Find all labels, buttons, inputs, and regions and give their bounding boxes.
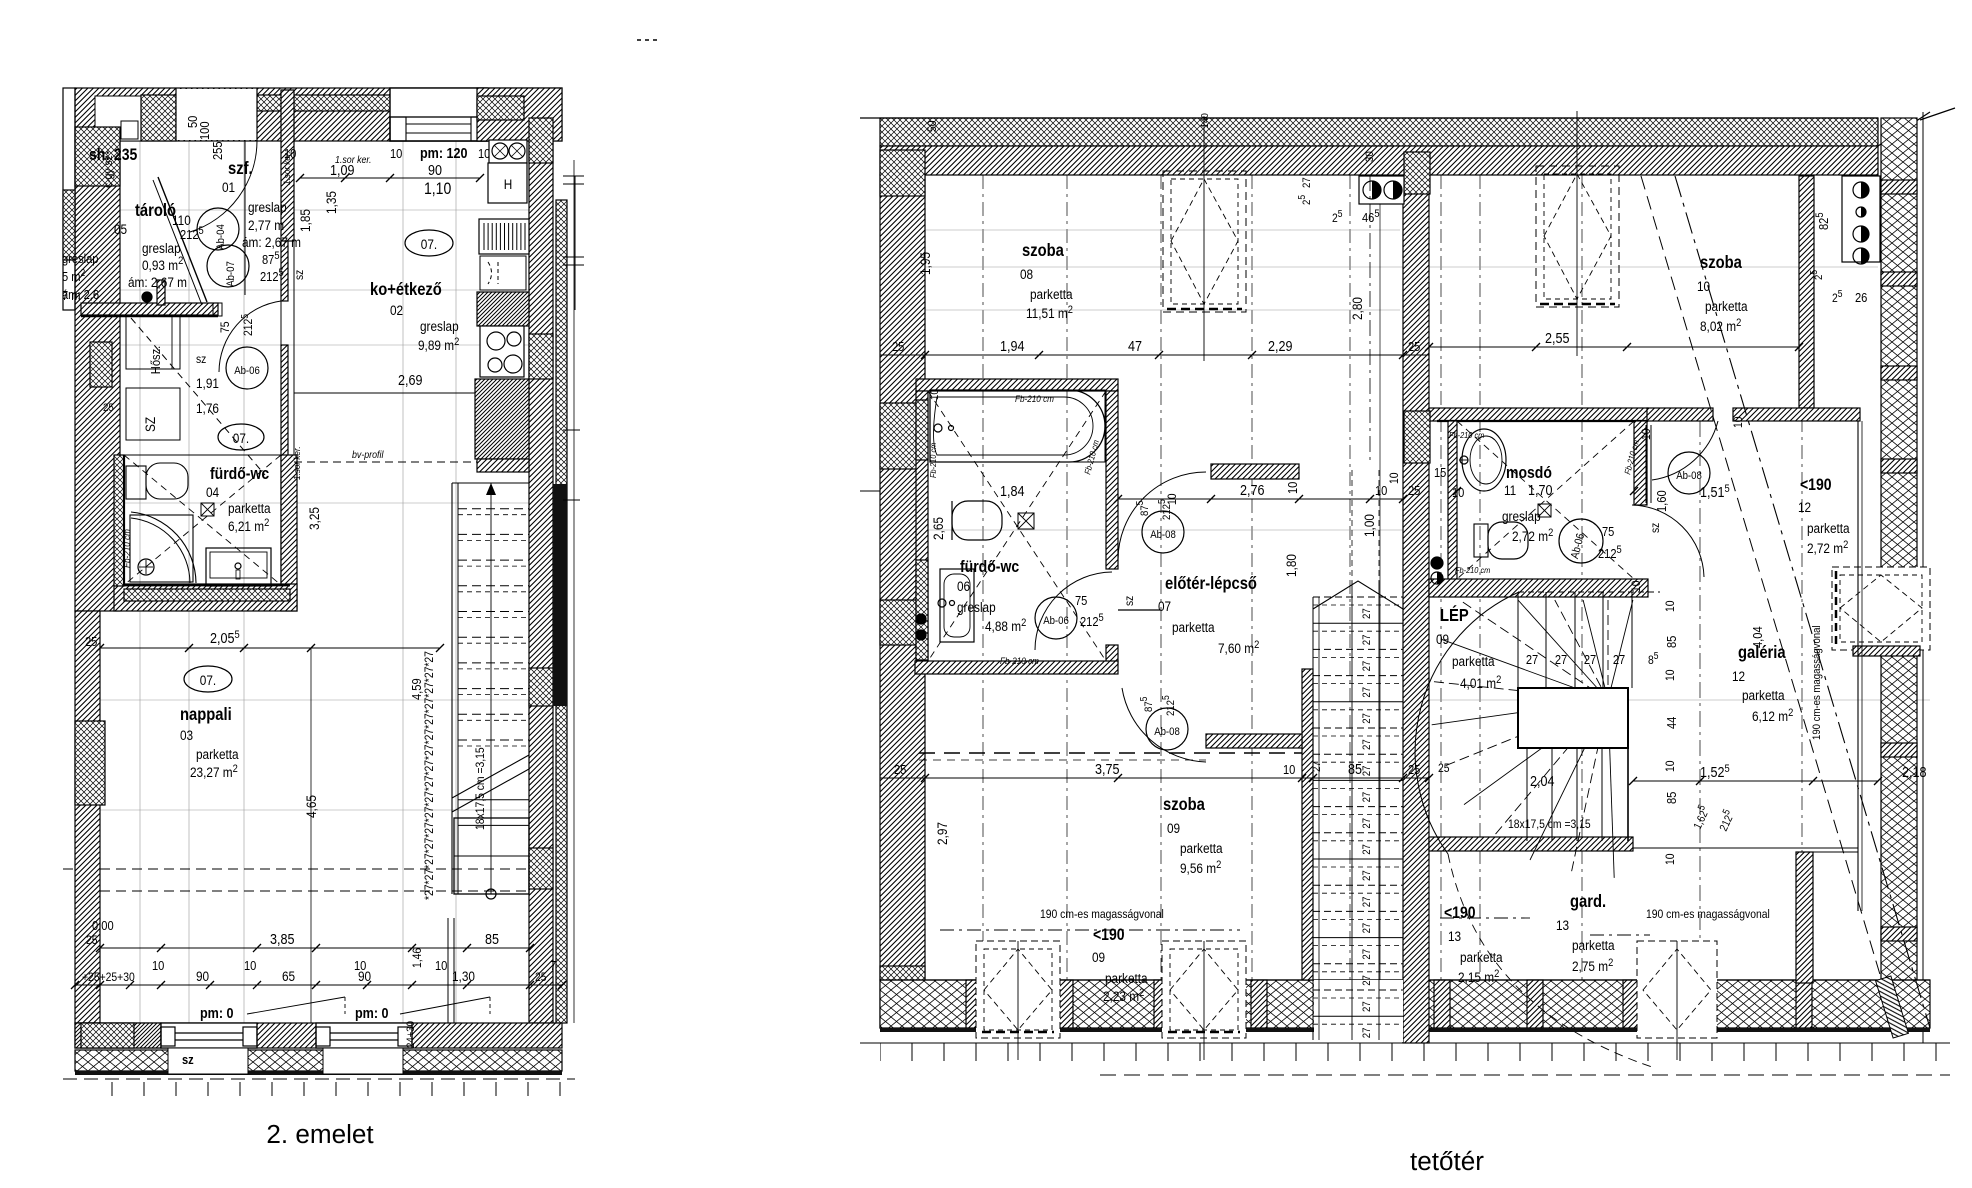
svg-text:65: 65 [282,968,295,984]
svg-text:gard.: gard. [1570,892,1606,911]
svg-text:10: 10 [1452,485,1465,500]
svg-text:03: 03 [180,727,193,743]
svg-text:26: 26 [1855,290,1868,305]
svg-text:Ab-06: Ab-06 [1043,615,1069,627]
svg-text:1,85: 1,85 [297,209,313,232]
svg-text:27: 27 [1361,792,1373,803]
svg-text:140: 140 [1199,113,1211,128]
svg-text:10: 10 [1664,853,1677,865]
svg-text:sz: sz [293,269,306,280]
svg-text:10: 10 [1166,493,1179,505]
svg-text:13: 13 [1448,928,1461,944]
svg-text:parketta: parketta [1105,970,1148,986]
svg-text:*27*27*27*27*27*27*27*27*27*27: *27*27*27*27*27*27*27*27*27*27*27*27*27*… [423,651,436,900]
svg-text:23,27 m2: 23,27 m2 [190,763,238,780]
svg-text:greslap: greslap [957,599,996,615]
svg-text:0,93 m2: 0,93 m2 [142,255,184,273]
svg-text:1,60: 1,60 [1654,490,1669,512]
svg-text:1,46: 1,46 [411,948,424,968]
svg-text:H: H [504,176,513,192]
svg-text:ám: 2,67 m: ám: 2,67 m [242,234,301,250]
svg-text:sz: sz [1123,595,1136,606]
svg-text:4,04: 4,04 [1750,626,1765,648]
svg-text:07.: 07. [233,430,249,446]
svg-text:25: 25 [535,971,547,984]
svg-text:1,95: 1,95 [917,252,933,275]
svg-text:10: 10 [1630,580,1643,592]
svg-text:1,84: 1,84 [1000,483,1025,499]
svg-text:04: 04 [206,484,219,500]
svg-text:Fb-210 cm: Fb-210 cm [1449,430,1485,440]
svg-text:2,97: 2,97 [934,822,950,845]
svg-text:tetőtér: tetőtér [1410,1146,1484,1176]
svg-text:7: 7 [550,958,556,973]
svg-text:1.sor ker.: 1.sor ker. [291,446,302,480]
svg-text:Fb-210 cm: Fb-210 cm [928,442,938,478]
svg-text:3,25: 3,25 [306,507,322,530]
svg-text:10: 10 [1388,472,1401,484]
svg-text:75: 75 [219,321,232,333]
svg-text:27: 27 [1361,923,1373,934]
svg-text:sz: sz [196,353,207,366]
svg-text:27: 27 [1526,652,1539,667]
svg-text:1,91: 1,91 [196,375,219,391]
svg-text:parketta: parketta [1572,937,1615,953]
svg-text:10: 10 [1640,428,1653,440]
svg-text:90: 90 [428,162,442,178]
svg-text:27: 27 [1301,177,1313,188]
svg-text:10: 10 [1283,762,1296,777]
svg-text:10: 10 [152,958,165,973]
svg-text:Ab-08: Ab-08 [1676,470,1702,482]
svg-text:13: 13 [1556,917,1569,933]
svg-text:2,77 m: 2,77 m [248,217,284,233]
svg-text:7 m: 7 m [62,288,81,303]
svg-text:18x17,5 cm =3,15: 18x17,5 cm =3,15 [1508,818,1591,831]
svg-text:09: 09 [1167,820,1180,836]
svg-text:190 cm-es magasságvonal: 190 cm-es magasságvonal [1040,908,1164,921]
svg-text:90: 90 [196,968,209,984]
svg-text:1,80: 1,80 [1283,554,1299,577]
svg-text:bv-profil: bv-profil [352,449,384,461]
svg-text:SZ: SZ [142,417,158,432]
svg-text:25: 25 [894,762,907,777]
svg-text:100: 100 [197,121,212,140]
svg-text:27: 27 [1361,634,1373,645]
svg-text:fürdő-wc: fürdő-wc [210,465,270,483]
svg-text:<190: <190 [1093,926,1125,944]
svg-text:mosdó: mosdó [1506,464,1552,482]
svg-text:27: 27 [1361,608,1373,619]
svg-text:25: 25 [85,634,98,649]
svg-text:75: 75 [1602,524,1615,539]
svg-text:Fb-210 cm: Fb-210 cm [1455,565,1491,575]
svg-text:10: 10 [1375,483,1388,498]
svg-text:parketta: parketta [1452,653,1495,669]
svg-text:szf.: szf. [228,159,253,178]
svg-text:27: 27 [1361,818,1373,829]
svg-text:07.: 07. [421,236,437,252]
svg-text:parketta: parketta [1807,520,1850,536]
svg-text:2,76: 2,76 [1240,482,1265,498]
svg-text:190 cm-es magasságvonal: 190 cm-es magasságvonal [1646,908,1770,921]
svg-text:Hősz.: Hősz. [148,346,163,374]
svg-text:09: 09 [1436,631,1449,647]
svg-text:1,10: 1,10 [424,180,451,198]
svg-text:27: 27 [1311,761,1323,772]
svg-text:27: 27 [1361,765,1373,776]
svg-text:02: 02 [390,302,403,318]
svg-text:10: 10 [435,958,448,973]
svg-text:2,29: 2,29 [1268,338,1292,354]
svg-text:2,72 m2: 2,72 m2 [1807,539,1849,556]
svg-text:10: 10 [1664,760,1677,772]
svg-text:2,04: 2,04 [1530,773,1555,789]
svg-text:25: 25 [892,339,905,354]
svg-text:1,00: 1,00 [1361,514,1377,537]
svg-text:10: 10 [929,389,941,400]
svg-text:pm: 0: pm: 0 [355,1005,389,1021]
svg-text:Fb-210 cm: Fb-210 cm [1015,393,1054,404]
svg-text:85: 85 [485,931,499,947]
svg-text:05: 05 [114,221,127,237]
svg-text:25: 25 [1408,762,1421,777]
svg-text:190 cm-es magasságvonal: 190 cm-es magasságvonal [1811,625,1823,740]
svg-text:2. emelet: 2. emelet [266,1119,374,1149]
svg-text:27: 27 [1361,661,1373,672]
svg-text:27: 27 [1361,713,1373,724]
svg-text:11,51 m2: 11,51 m2 [1026,304,1073,321]
svg-text:7,60 m2: 7,60 m2 [1218,639,1260,656]
svg-text:01: 01 [222,179,235,195]
svg-text:27: 27 [1361,975,1373,986]
svg-text:50: 50 [926,120,939,132]
svg-text:2,55: 2,55 [1545,330,1570,346]
svg-text:27: 27 [1361,1027,1373,1038]
svg-text:4,88 m2: 4,88 m2 [985,617,1027,634]
svg-text:ko+étkező: ko+étkező [370,280,442,299]
svg-text:10: 10 [1285,481,1300,494]
svg-text:10: 10 [1732,416,1745,428]
svg-text:1,35: 1,35 [323,191,339,214]
svg-text:szoba: szoba [1022,241,1065,260]
svg-text:10: 10 [1664,669,1677,681]
svg-text:9,56 m2: 9,56 m2 [1180,859,1222,876]
svg-text:Fb-210 cm: Fb-210 cm [1000,655,1039,666]
svg-text:27: 27 [1361,949,1373,960]
svg-text:sz: sz [182,1052,194,1067]
svg-text:85: 85 [1348,761,1362,777]
svg-text:parketta: parketta [1742,687,1785,703]
svg-text:tároló: tároló [135,201,176,220]
svg-text:25: 25 [1408,339,1421,354]
svg-text:parketta: parketta [1030,286,1073,302]
svg-text:27: 27 [1361,1001,1373,1012]
svg-text:parketta: parketta [1180,840,1223,856]
svg-text:25: 25 [103,402,114,414]
svg-text:10: 10 [244,958,257,973]
svg-text:parketta: parketta [196,746,239,762]
svg-text:27: 27 [1361,687,1373,698]
svg-text:11: 11 [1504,482,1516,498]
svg-text:90: 90 [358,968,371,984]
svg-text:255: 255 [210,141,225,160]
svg-text:<190: <190 [1444,904,1476,922]
svg-text:Ab-07: Ab-07 [225,261,237,287]
svg-text:greslap: greslap [248,199,287,215]
svg-text:06: 06 [957,578,970,594]
svg-text:12: 12 [1798,499,1811,515]
svg-text:08: 08 [1020,266,1033,282]
svg-text:1,70: 1,70 [1528,482,1553,498]
svg-text:greslap: greslap [62,251,99,266]
svg-text:47: 47 [1128,338,1142,354]
svg-text:4,59: 4,59 [409,678,424,700]
svg-text:09: 09 [1092,949,1105,965]
svg-text:ám: 2,67 m: ám: 2,67 m [128,274,187,290]
svg-text:Ab-08: Ab-08 [1154,726,1180,738]
svg-text:greslap: greslap [420,318,459,334]
svg-text:parketta: parketta [228,500,271,516]
svg-text:10: 10 [284,146,297,161]
svg-text:27: 27 [1584,652,1597,667]
svg-text:0,00: 0,00 [92,918,114,933]
svg-text:75: 75 [1075,593,1088,608]
svg-text:2,65: 2,65 [930,517,946,540]
svg-text:07.: 07. [200,672,216,688]
svg-text:85: 85 [1664,635,1679,648]
svg-text:parketta: parketta [1460,949,1503,965]
svg-text:24+30: 24+30 [405,1021,417,1048]
svg-text:sz: sz [1649,522,1662,533]
svg-text:3,85: 3,85 [270,931,295,947]
svg-text:greslap: greslap [142,240,181,256]
svg-text:3,75: 3,75 [1095,761,1120,777]
svg-text:2,23 m2: 2,23 m2 [1103,987,1145,1004]
svg-text:1,94: 1,94 [1000,338,1025,354]
svg-text:fürdő-wc: fürdő-wc [960,558,1020,576]
svg-text:2,80: 2,80 [1349,297,1365,320]
svg-text:1,09: 1,09 [330,162,354,178]
svg-text:LÉP: LÉP [1440,605,1469,625]
svg-text:15: 15 [1434,465,1447,480]
svg-text:9,89 m2: 9,89 m2 [418,336,460,353]
svg-text:szoba: szoba [1163,795,1206,814]
svg-text:pm: 120: pm: 120 [420,145,468,161]
svg-text:2,75 m2: 2,75 m2 [1572,957,1614,974]
svg-text:27: 27 [1361,739,1373,750]
svg-text:<190: <190 [1800,476,1832,494]
svg-text:Ab-08: Ab-08 [1150,529,1176,541]
svg-text:25: 25 [86,934,98,947]
svg-text:nappali: nappali [180,705,232,724]
svg-text:Ab-06: Ab-06 [234,365,260,377]
svg-text:27: 27 [1361,870,1373,881]
svg-text:07: 07 [1158,598,1171,614]
svg-text:25: 25 [1408,483,1421,498]
svg-text:1,30: 1,30 [452,968,475,984]
svg-text:2,15 m2: 2,15 m2 [1458,968,1500,985]
svg-text:8,02 m2: 8,02 m2 [1700,317,1742,334]
svg-text:Fb-210 cm: Fb-210 cm [121,529,132,568]
svg-text:4,01 m2: 4,01 m2 [1460,674,1502,691]
svg-text:27: 27 [1361,844,1373,855]
svg-text:30: 30 [1364,151,1376,162]
svg-text:2,72 m2: 2,72 m2 [1512,527,1554,544]
svg-text:10: 10 [1697,278,1710,294]
svg-text:18x17,5 cm =3,15: 18x17,5 cm =3,15 [474,747,487,830]
svg-text:2,69: 2,69 [398,372,422,388]
svg-text:parketta: parketta [1172,619,1215,635]
svg-text:6,21 m2: 6,21 m2 [228,517,270,534]
svg-text:85: 85 [1664,791,1679,804]
svg-text:szoba: szoba [1700,253,1743,272]
svg-text:előtér-lépcső: előtér-lépcső [1165,574,1257,593]
svg-text:pm: 0: pm: 0 [200,1005,234,1021]
svg-text:27: 27 [1361,896,1373,907]
svg-text:10: 10 [390,146,403,161]
svg-text:12: 12 [1732,668,1745,684]
svg-text:parketta: parketta [1705,298,1748,314]
svg-text:6,12 m2: 6,12 m2 [1752,707,1794,724]
svg-text:+25+25+30: +25+25+30 [82,971,135,984]
svg-text:25: 25 [1438,762,1450,775]
svg-text:c-gy sz: c-gy sz [102,155,115,188]
svg-text:greslap: greslap [1502,508,1541,524]
svg-text:1,76: 1,76 [196,400,219,416]
svg-text:2,18: 2,18 [1902,764,1927,780]
svg-text:10: 10 [1664,600,1677,612]
svg-text:44: 44 [1664,716,1679,729]
